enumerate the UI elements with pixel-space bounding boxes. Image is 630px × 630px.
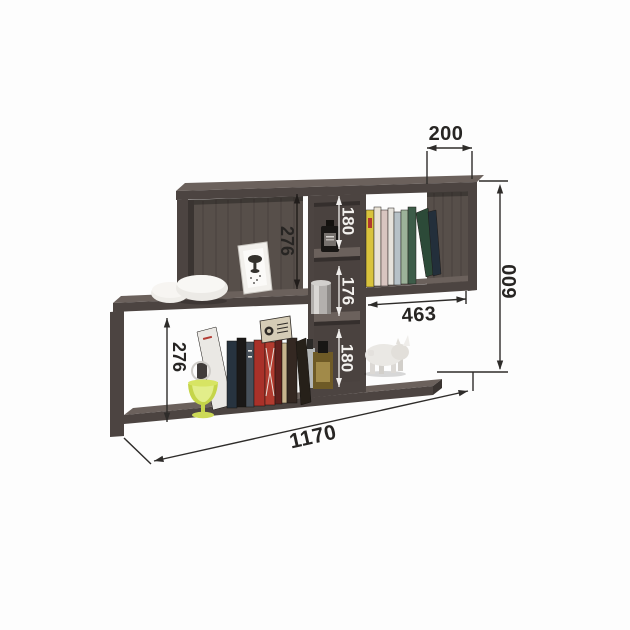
book-spine [381, 210, 388, 286]
book-spine [388, 208, 394, 285]
book-spine [227, 341, 237, 408]
dim-label-cell-bottom: 180 [338, 344, 357, 372]
dim-label-cell-top: 180 [339, 207, 358, 235]
book-spine [237, 338, 246, 407]
book-spine [394, 212, 401, 285]
book-spine [275, 339, 282, 404]
radio-ornament [260, 316, 292, 343]
metal-cylinder [311, 280, 331, 314]
furniture-dimension-diagram: 200 600 1170 463 [0, 0, 630, 630]
book-spine [408, 207, 416, 284]
book-spine [246, 342, 254, 407]
right-side-panel [468, 182, 477, 291]
book-spine [287, 338, 297, 403]
dim-label-cell-center: 176 [339, 277, 358, 305]
lower-left-side-panel [110, 311, 124, 437]
photo-frame [238, 242, 272, 294]
books-upper [366, 207, 441, 287]
shelf-diagram-canvas: 200 600 1170 463 [0, 0, 630, 630]
dim-label-overall-height: 600 [499, 264, 521, 299]
dim-label-right-shelf-width: 463 [401, 303, 437, 327]
book-spine [401, 210, 408, 284]
book-spine [254, 340, 265, 406]
dim-label-top-width: 200 [429, 123, 464, 145]
dim-label-lower-compartment: 276 [169, 342, 189, 372]
book-spine [282, 343, 287, 403]
dim-label-upper-compartment: 276 [277, 226, 297, 256]
book-spine [374, 207, 381, 286]
